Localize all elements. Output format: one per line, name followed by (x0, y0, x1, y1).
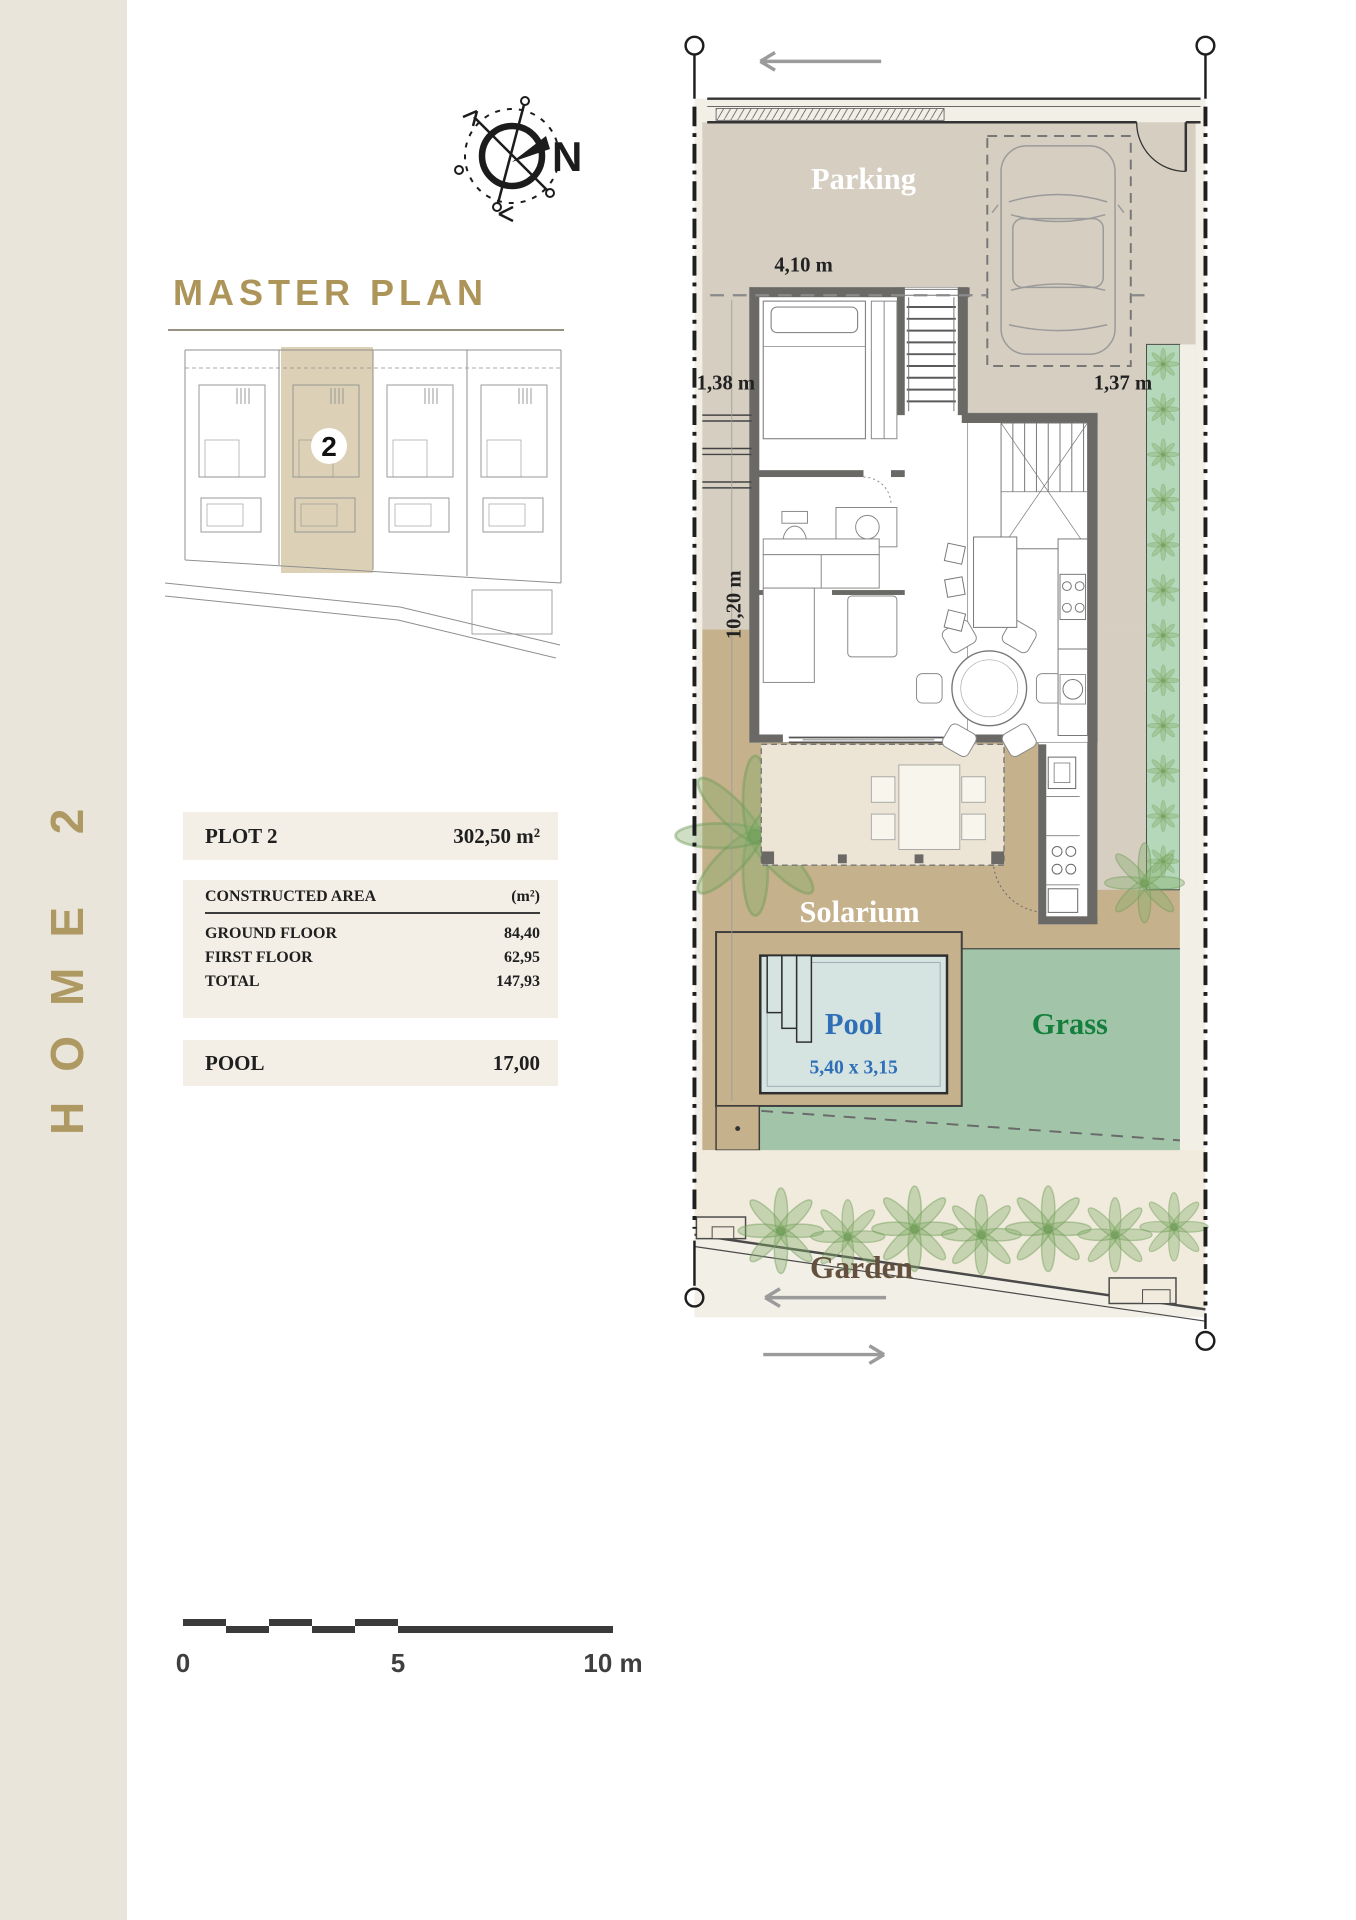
solarium-label: Solarium (799, 895, 919, 929)
scale-ten: 10 m (583, 1648, 642, 1678)
plot-badge-number: 2 (321, 431, 337, 462)
table-row: GROUND FLOOR 84,40 (205, 922, 540, 946)
plot-value: 302,50 m² (453, 824, 540, 849)
row-label: GROUND FLOOR (205, 922, 337, 946)
row-label: TOTAL (205, 970, 260, 994)
floor-plan: Parking Solarium Pool 5,40 x 3,15 Grass … (655, 25, 1240, 1445)
kitchen-counter (1058, 539, 1087, 736)
scale-zero: 0 (176, 1648, 190, 1678)
pool-water: Pool 5,40 x 3,15 (760, 956, 947, 1094)
arrow-right-bottom-icon (763, 1346, 884, 1364)
row-label: FIRST FLOOR (205, 946, 313, 970)
compass-north-label: N (552, 133, 582, 180)
bed (763, 301, 865, 439)
row-value: 147,93 (496, 970, 540, 994)
dim-side: 10,20 m (724, 570, 746, 639)
right-margin (1180, 344, 1196, 1150)
garden-label: Garden (810, 1250, 914, 1285)
dim-right: 1,37 m (1094, 373, 1152, 395)
scale-bar-segments (183, 1619, 613, 1633)
plot-row: PLOT 2 302,50 m² (183, 812, 558, 860)
pool-row: POOL 17,00 (183, 1040, 558, 1086)
master-plan-drawing: 2 (150, 340, 580, 660)
grass-label: Grass (1032, 1007, 1108, 1041)
parking-label: Parking (811, 162, 916, 196)
gate-hatch (716, 109, 944, 121)
dim-top: 4,10 m (774, 255, 832, 277)
table-row: FIRST FLOOR 62,95 (205, 946, 540, 970)
title-rule (168, 329, 564, 333)
kitchen-peninsula (944, 537, 1017, 631)
pool-label-front: Pool (825, 1007, 883, 1041)
pool-size-label-front: 5,40 x 3,15 (809, 1057, 898, 1079)
compass: N (440, 85, 595, 225)
row-value: 62,95 (504, 946, 540, 970)
pool-value: 17,00 (493, 1051, 540, 1076)
constructed-unit: (m²) (511, 888, 540, 906)
staircase (1001, 423, 1087, 549)
constructed-header: CONSTRUCTED AREA (205, 888, 376, 906)
table-row: TOTAL 147,93 (205, 970, 540, 994)
constructed-area-table: CONSTRUCTED AREA (m²) GROUND FLOOR 84,40… (183, 880, 558, 1018)
scale-bar: 0 5 10 m (170, 1600, 690, 1690)
coffee-table (848, 596, 897, 657)
arrow-left-top-icon (760, 53, 881, 71)
master-plan-title: MASTER PLAN (173, 272, 488, 314)
covered-terrace (761, 744, 1004, 865)
row-value: 84,40 (504, 922, 540, 946)
dim-left: 1,38 m (697, 373, 755, 395)
plot-label: PLOT 2 (205, 824, 278, 849)
scale-five: 5 (391, 1648, 405, 1678)
page-title-vertical: HOME 2 (22, 742, 112, 1172)
constructed-header-row: CONSTRUCTED AREA (m²) (205, 888, 540, 914)
pool-label: POOL (205, 1051, 265, 1076)
